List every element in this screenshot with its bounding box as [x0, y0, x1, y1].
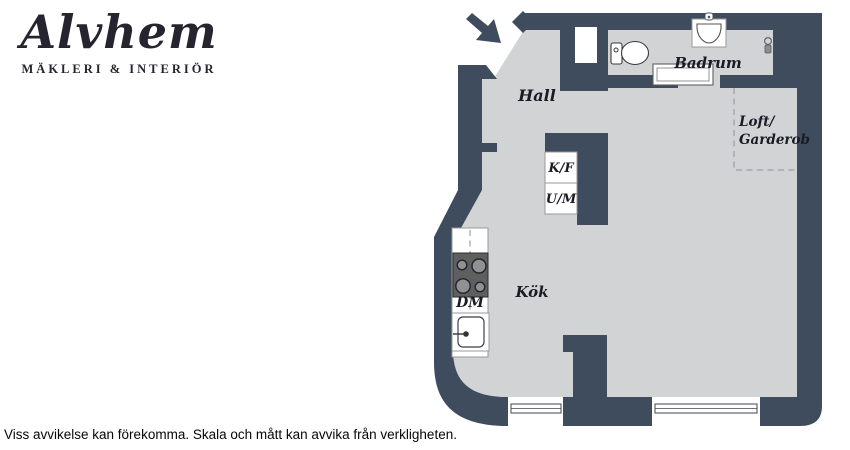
- label-hall: Hall: [517, 86, 556, 105]
- wall-left-upper: [458, 79, 482, 190]
- entrance-arrow-icon: [466, 13, 501, 43]
- kitchen-sink-icon: [452, 313, 489, 351]
- wall-kf-island-cap: [545, 133, 608, 152]
- toilet-icon: [611, 42, 649, 65]
- brand-logo: Alvhem: [14, 2, 224, 62]
- wall-bottom-middle: [563, 397, 652, 426]
- stove-icon: [453, 253, 488, 297]
- label-loft-line2: Garderob: [739, 132, 810, 148]
- label-kf: K/F: [547, 161, 574, 176]
- wall-bathroom-bottom-right: [720, 75, 797, 88]
- wall-kf-island-column: [577, 152, 608, 225]
- brand-tagline: MÄKLERI & INTERIÖR: [14, 62, 224, 77]
- burner-small-top-left: [457, 260, 467, 270]
- wall-stub-body: [573, 352, 607, 397]
- burner-small-bottom-right: [475, 282, 485, 292]
- window-icon-right: [655, 404, 757, 413]
- wall-stub-cap: [563, 335, 607, 352]
- label-kok: Kök: [514, 283, 548, 301]
- shaft-niche: [575, 27, 597, 63]
- wall-entrance-flank: [458, 65, 497, 79]
- burner-large-bottom-left: [456, 279, 470, 293]
- label-badrum: Badrum: [673, 54, 742, 72]
- label-loft-line1: Loft/: [738, 114, 777, 130]
- burner-large-top-right: [472, 259, 486, 273]
- disclaimer-text: Viss avvikelse kan förekomma. Skala och …: [4, 427, 457, 442]
- label-dm: DM: [455, 295, 484, 311]
- label-um: U/M: [546, 192, 577, 207]
- window-icon-left: [511, 404, 561, 413]
- wall-left-stub: [482, 143, 497, 152]
